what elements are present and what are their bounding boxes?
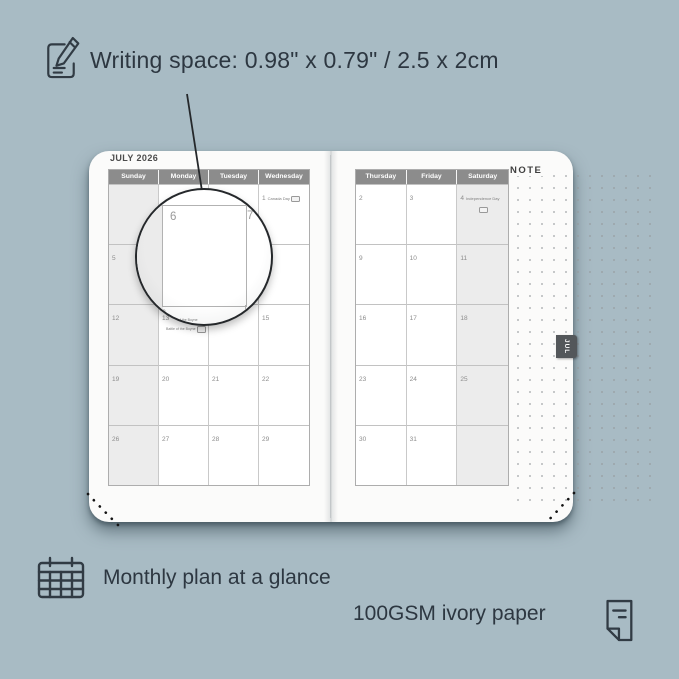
date-number: 11 — [460, 255, 467, 262]
right-calendar: ThursdayFridaySaturday234Independence Da… — [355, 169, 509, 486]
date-cell: 23 — [356, 365, 407, 425]
date-number: 23 — [359, 376, 366, 383]
date-number: 15 — [262, 315, 269, 322]
date-cell: 2 — [356, 184, 407, 244]
date-number: 20 — [162, 376, 169, 383]
memo-pencil-icon — [41, 34, 81, 82]
date-number: 3 — [410, 195, 414, 202]
holiday-label: Independence Day — [466, 196, 500, 201]
date-cell: 10 — [407, 244, 458, 304]
date-cell: 4Independence Day — [457, 184, 508, 244]
date-number: 17 — [410, 315, 417, 322]
date-number: 24 — [410, 376, 417, 383]
month-tab-jul[interactable]: JUL — [556, 335, 577, 358]
date-cell: 15 — [259, 304, 309, 364]
day-header: Sunday — [109, 170, 159, 184]
date-cell: 27 — [159, 425, 209, 485]
date-number: 1 — [262, 195, 266, 202]
date-number: 30 — [359, 436, 366, 443]
date-cell: 18 — [457, 304, 508, 364]
date-number: 2 — [359, 195, 363, 202]
date-number: 4 — [460, 195, 464, 202]
flag-badge-icon — [291, 196, 300, 203]
date-cell: 20 — [159, 365, 209, 425]
date-cell: 31 — [407, 425, 458, 485]
month-title: JULY 2026 — [110, 153, 158, 163]
date-cell: 26 — [109, 425, 159, 485]
monthly-plan-note: Monthly plan at a glance — [103, 566, 331, 590]
day-header: Thursday — [356, 170, 407, 184]
day-header: Monday — [159, 170, 209, 184]
date-cell: 21 — [209, 365, 259, 425]
magnifier-circle: 6 7 13 Battle of the Boyne — [135, 188, 273, 326]
calendar-grid-icon — [36, 555, 86, 601]
date-cell: 28 — [209, 425, 259, 485]
month-tab-label: JUL — [563, 339, 570, 354]
date-number: 27 — [162, 436, 169, 443]
date-number: 21 — [212, 376, 219, 383]
date-number: 19 — [112, 376, 119, 383]
date-cell: 9 — [356, 244, 407, 304]
date-cell: 29 — [259, 425, 309, 485]
magnifier-gloss — [137, 190, 271, 324]
date-cell: 17 — [407, 304, 458, 364]
date-number: 29 — [262, 436, 269, 443]
day-header: Friday — [407, 170, 458, 184]
date-number: 5 — [112, 255, 116, 262]
date-cell: 16 — [356, 304, 407, 364]
date-cell: 3 — [407, 184, 458, 244]
day-header: Saturday — [457, 170, 508, 184]
flag-badge-icon — [479, 207, 488, 214]
spine-crease — [324, 151, 338, 522]
date-cell: 19 — [109, 365, 159, 425]
note-dot-grid — [510, 167, 658, 501]
date-cell — [457, 425, 508, 485]
date-number: 28 — [212, 436, 219, 443]
date-number: 18 — [460, 315, 467, 322]
date-number: 26 — [112, 436, 119, 443]
date-cell: 24 — [407, 365, 458, 425]
date-number: 9 — [359, 255, 363, 262]
paper-sheet-icon — [599, 596, 637, 646]
paper-note: 100GSM ivory paper — [353, 602, 546, 626]
date-number: 16 — [359, 315, 366, 322]
date-cell: 30 — [356, 425, 407, 485]
writing-space-note: Writing space: 0.98" x 0.79" / 2.5 x 2cm — [90, 47, 499, 74]
date-cell: 25 — [457, 365, 508, 425]
holiday-label: Canada Day — [268, 196, 300, 201]
date-number: 22 — [262, 376, 269, 383]
holiday-label: Battle of the Boyne — [166, 326, 207, 333]
spine-line — [330, 155, 331, 518]
date-number: 10 — [410, 255, 417, 262]
day-header: Tuesday — [209, 170, 259, 184]
day-header: Wednesday — [259, 170, 309, 184]
date-number: 25 — [460, 376, 467, 383]
date-number: 31 — [410, 436, 417, 443]
date-number: 12 — [112, 315, 119, 322]
flag-badge-icon — [197, 326, 206, 333]
date-cell: 22 — [259, 365, 309, 425]
date-cell: 11 — [457, 244, 508, 304]
note-label: NOTE — [510, 165, 545, 176]
